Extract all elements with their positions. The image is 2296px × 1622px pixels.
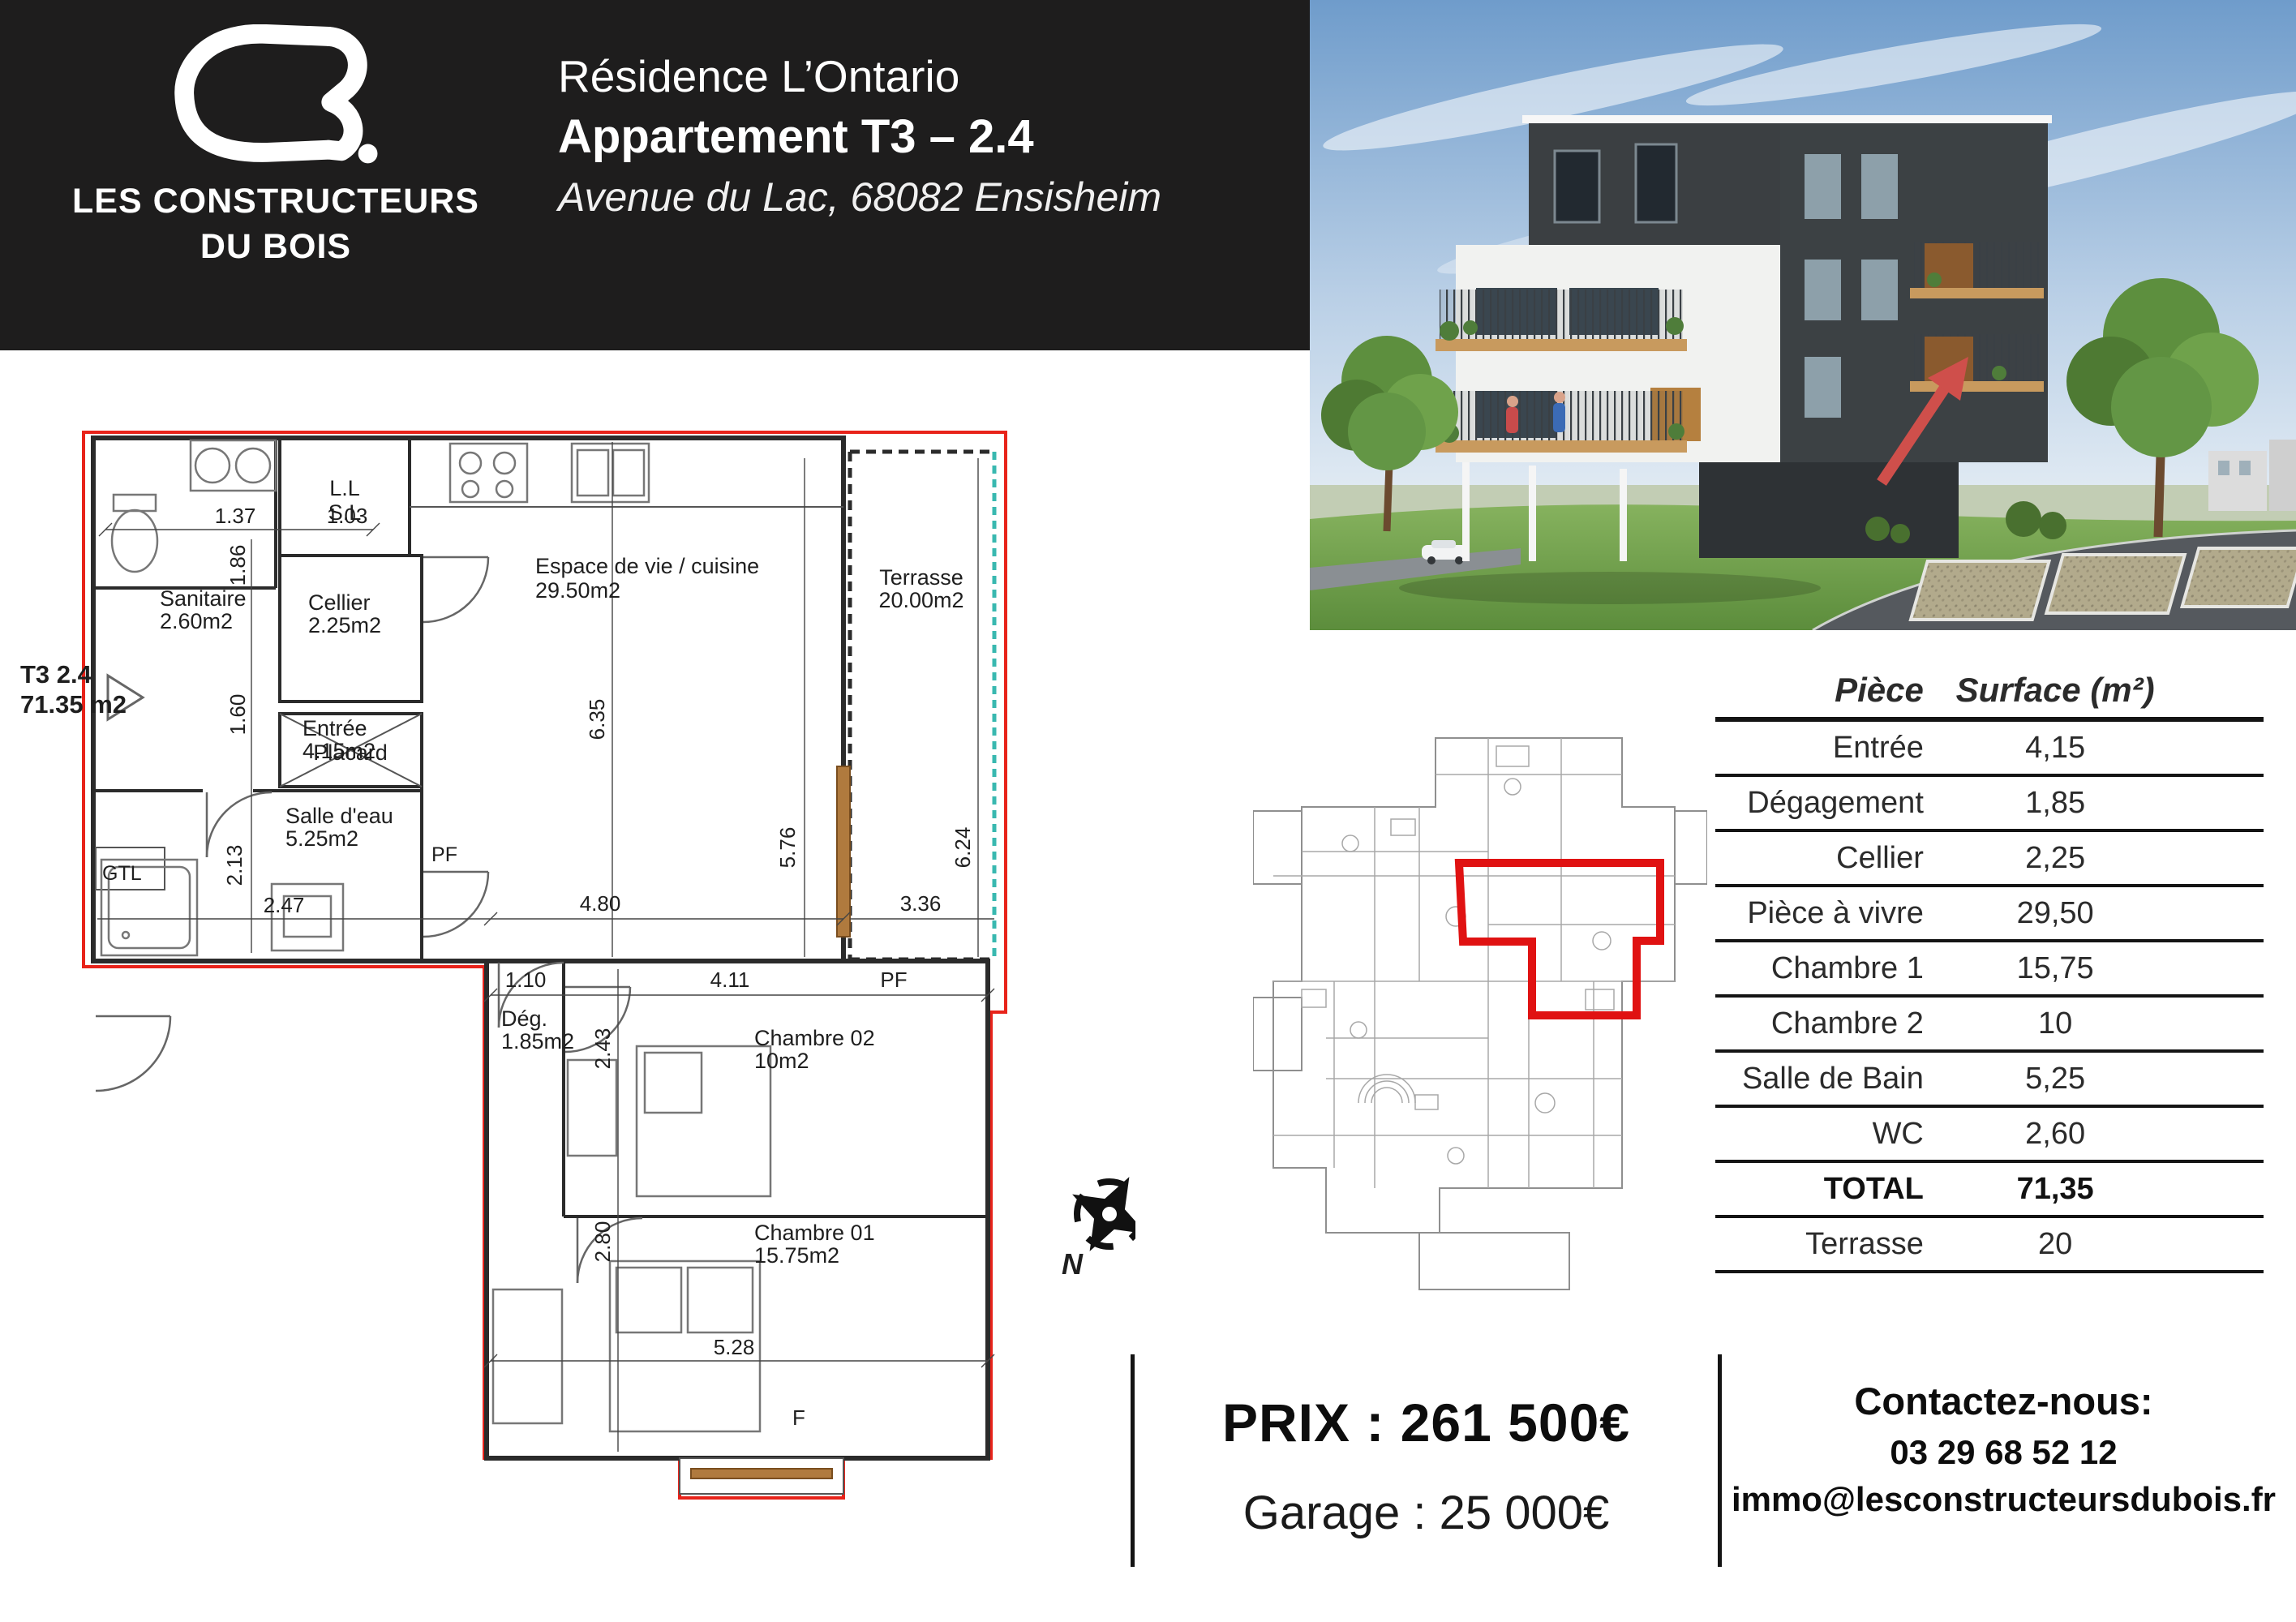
svg-text:Espace de vie / cuisine: Espace de vie / cuisine: [535, 554, 759, 578]
contact-section: Contactez-nous: 03 29 68 52 12 immo@lesc…: [1718, 1354, 2285, 1567]
table-row: Cellier2,25: [1715, 832, 2264, 887]
header: LES CONSTRUCTEURS DU BOIS Résidence L’On…: [0, 0, 1310, 350]
table-row: TOTAL71,35: [1715, 1163, 2264, 1218]
floor-plan: T3 2.471.35 m2Sanitaire2.60m2L.LS.L1.371…: [0, 418, 1135, 1541]
svg-text:2.60m2: 2.60m2: [160, 609, 233, 633]
svg-text:PF: PF: [880, 968, 907, 992]
svg-text:L.L: L.L: [329, 476, 360, 500]
contact-email: immo@lesconstructeursdubois.fr: [1722, 1480, 2285, 1519]
svg-text:N: N: [1062, 1247, 1084, 1281]
svg-text:5.25m2: 5.25m2: [285, 826, 358, 851]
table-row: WC2,60: [1715, 1108, 2264, 1163]
bedroom-window: [691, 1469, 832, 1478]
site-plan: [1253, 714, 1707, 1298]
price-value: PRIX : 261 500€: [1135, 1392, 1718, 1453]
svg-text:Entrée: Entrée: [303, 716, 367, 740]
doors: [96, 557, 642, 1283]
person: [1506, 396, 1518, 433]
svg-text:Chambre 01: Chambre 01: [754, 1221, 875, 1245]
person: [1553, 392, 1565, 432]
table-header: Pièce Surface (m²): [1715, 663, 2264, 722]
terrace-border: [850, 452, 994, 959]
svg-text:3.36: 3.36: [900, 891, 942, 916]
svg-text:4.15m2: 4.15m2: [303, 739, 376, 763]
table-row: Dégagement1,85: [1715, 777, 2264, 832]
garage-price: Garage : 25 000€: [1135, 1486, 1718, 1540]
svg-text:1.85m2: 1.85m2: [501, 1029, 574, 1053]
svg-text:4.11: 4.11: [710, 968, 750, 992]
svg-text:T3 2.4: T3 2.4: [20, 660, 92, 689]
building-photo: [1310, 0, 2296, 630]
svg-text:5.76: 5.76: [775, 827, 800, 869]
svg-text:1.10: 1.10: [505, 968, 547, 992]
svg-text:29.50m2: 29.50m2: [535, 578, 620, 603]
table-row: Salle de Bain5,25: [1715, 1053, 2264, 1108]
svg-text:Salle d'eau: Salle d'eau: [285, 804, 393, 828]
svg-text:2.80: 2.80: [590, 1221, 615, 1263]
svg-text:20.00m2: 20.00m2: [878, 588, 963, 612]
apartment-title: Appartement T3 – 2.4: [558, 105, 1161, 169]
svg-text:GTL: GTL: [102, 862, 142, 885]
svg-text:Cellier: Cellier: [308, 590, 371, 615]
logo-text-line2: DU BOIS: [49, 224, 503, 269]
table-row: Pièce à vivre29,50: [1715, 887, 2264, 942]
svg-text:1.60: 1.60: [225, 694, 250, 736]
svg-text:4.80: 4.80: [580, 891, 621, 916]
table-row: Entrée4,15: [1715, 722, 2264, 777]
table-row: Terrasse20: [1715, 1218, 2264, 1273]
svg-text:1.86: 1.86: [225, 545, 250, 586]
surface-table: Pièce Surface (m²) Entrée4,15Dégagement1…: [1715, 663, 2264, 1273]
svg-text:Dég.: Dég.: [501, 1006, 547, 1031]
svg-text:Chambre 02: Chambre 02: [754, 1026, 875, 1050]
table-row: Chambre 115,75: [1715, 942, 2264, 998]
svg-text:15.75m2: 15.75m2: [754, 1243, 839, 1268]
svg-text:F: F: [792, 1405, 805, 1430]
svg-text:PF: PF: [431, 843, 457, 866]
svg-text:6.35: 6.35: [585, 699, 609, 740]
table-row: Chambre 210: [1715, 998, 2264, 1053]
svg-text:71.35 m2: 71.35 m2: [20, 690, 127, 719]
svg-text:2.13: 2.13: [222, 845, 247, 886]
company-logo-icon: [166, 24, 385, 164]
svg-text:5.28: 5.28: [714, 1335, 755, 1359]
svg-text:2.25m2: 2.25m2: [308, 613, 381, 637]
contact-phone: 03 29 68 52 12: [1722, 1433, 2285, 1472]
residence-name: Résidence L’Ontario: [558, 47, 1161, 105]
address: Avenue du Lac, 68082 Ensisheim: [558, 169, 1161, 225]
site-plan-highlight: [1459, 863, 1660, 1015]
terrace-slider: [837, 766, 850, 937]
svg-text:2.43: 2.43: [590, 1028, 615, 1070]
col-piece: Pièce: [1715, 671, 1924, 710]
company-logo: LES CONSTRUCTEURS DU BOIS: [49, 18, 503, 269]
real-estate-flyer: LES CONSTRUCTEURS DU BOIS Résidence L’On…: [0, 0, 2296, 1622]
svg-text:1.03: 1.03: [327, 504, 368, 528]
svg-text:10m2: 10m2: [754, 1049, 809, 1073]
surface-table-rows: Entrée4,15Dégagement1,85Cellier2,25Pièce…: [1715, 722, 2264, 1273]
plan-labels: T3 2.471.35 m2Sanitaire2.60m2L.LS.L1.371…: [20, 476, 1084, 1430]
svg-text:2.47: 2.47: [264, 893, 305, 917]
logo-text-line1: LES CONSTRUCTEURS: [49, 178, 503, 224]
svg-text:1.37: 1.37: [215, 504, 256, 528]
svg-text:Sanitaire: Sanitaire: [160, 586, 247, 611]
svg-text:6.24: 6.24: [951, 827, 975, 869]
price-section: PRIX : 261 500€ Garage : 25 000€: [1131, 1354, 1718, 1567]
col-surface: Surface (m²): [1924, 671, 2187, 710]
svg-text:Terrasse: Terrasse: [879, 565, 963, 590]
contact-title: Contactez-nous:: [1722, 1379, 2285, 1423]
